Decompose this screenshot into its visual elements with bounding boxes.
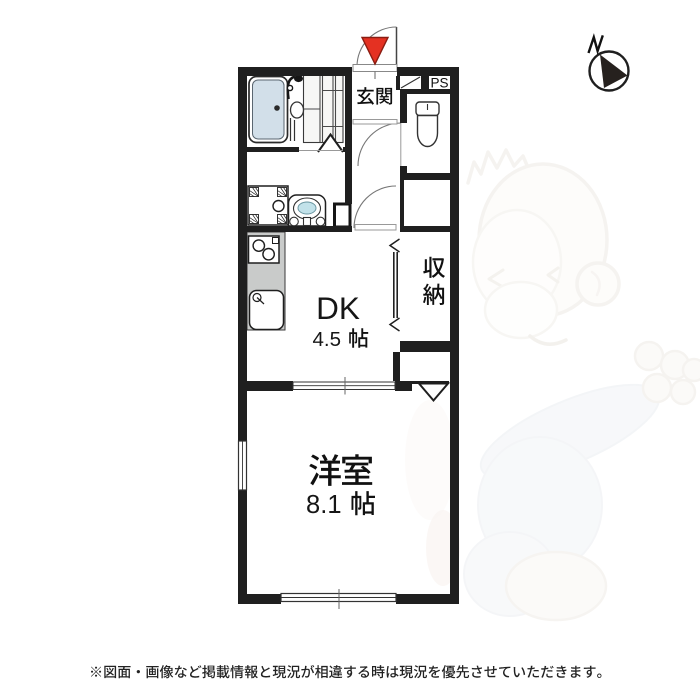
svg-text:PS: PS: [430, 76, 448, 91]
svg-text:4.5: 4.5: [313, 328, 342, 351]
svg-text:DK: DK: [316, 290, 360, 326]
svg-text:8.1: 8.1: [306, 491, 341, 519]
